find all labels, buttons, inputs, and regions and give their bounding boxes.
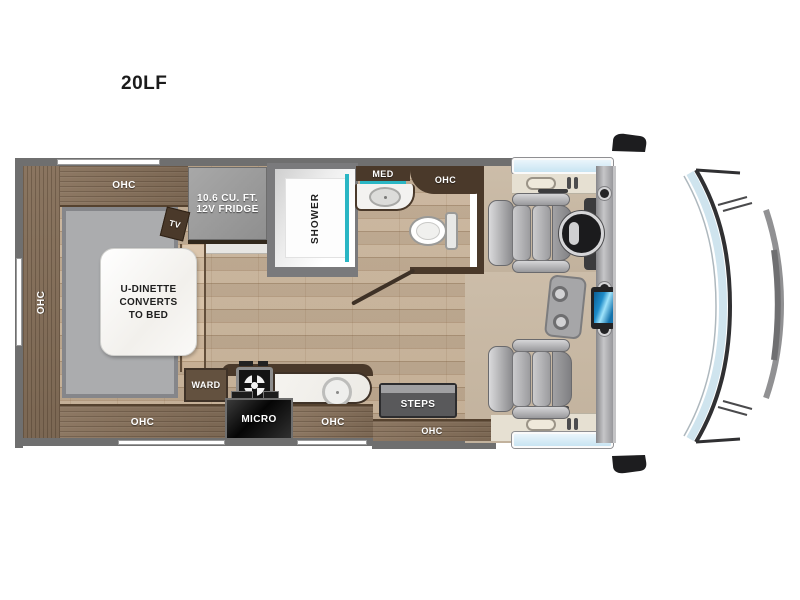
entry-steps-labelbox: STEPS xyxy=(381,389,455,420)
floorplan-title: 20LF xyxy=(121,73,167,95)
med-label: MED xyxy=(372,169,393,179)
med-cabinet: MED xyxy=(356,166,410,181)
passenger-seat-cushion-1 xyxy=(512,351,531,407)
windshield-tip-bottom xyxy=(696,439,740,442)
dinette-label-line2: CONVERTS xyxy=(120,296,178,309)
toilet-tank xyxy=(445,212,458,250)
entry-steps: STEPS xyxy=(379,383,457,418)
steering-wheel-hub xyxy=(569,222,579,245)
driver-seat-back xyxy=(488,200,514,266)
hood-lines-bottom xyxy=(718,401,752,415)
cab-right-edge xyxy=(613,166,616,443)
driver-seat-cushion-2 xyxy=(532,205,551,261)
windshield-frame xyxy=(696,170,730,442)
bath-ohc-cabinet: OHC xyxy=(410,166,481,194)
microwave: MICRO xyxy=(225,398,293,440)
driver-seat-cushion-1 xyxy=(512,205,531,261)
bumper-arc-shade xyxy=(774,250,778,360)
dinette-label-line1: U-DINETTE xyxy=(120,283,176,296)
windshield-tip-top xyxy=(696,170,740,173)
center-console xyxy=(544,274,587,340)
cupholder-2 xyxy=(553,314,569,330)
cabinet-bottom-mid-ohc: OHC xyxy=(293,404,373,438)
mirror-top-icon xyxy=(612,134,646,152)
passenger-seat-cushion-2 xyxy=(532,351,551,407)
windshield-glass xyxy=(690,173,723,439)
ohc-bath-label: OHC xyxy=(435,175,456,185)
shower-label: SHOWER xyxy=(310,193,321,244)
fridge-label-line2: 12V FRIDGE xyxy=(196,204,258,215)
wardrobe: WARD xyxy=(184,368,228,402)
micro-label: MICRO xyxy=(241,414,276,425)
bumper-arc xyxy=(766,210,781,398)
cabinet-entry-ohc: OHC xyxy=(373,419,491,441)
dash-knob-top xyxy=(600,189,609,198)
floorplan-page: 20LF OHC OHC 10.6 CU. FT. 12V FRIDGE STE… xyxy=(0,0,800,600)
passenger-seat xyxy=(478,338,582,420)
windshield-inner-edge xyxy=(684,176,716,436)
cabinet-left-ohc: OHC xyxy=(23,166,60,438)
dinette-label-line3: TO BED xyxy=(129,309,168,322)
passenger-seat-back xyxy=(488,346,514,412)
toilet-seat xyxy=(416,222,440,240)
cabinet-top-ohc: OHC xyxy=(60,166,188,207)
ward-label: WARD xyxy=(191,380,220,390)
window-left xyxy=(16,258,22,346)
cooktop-grate-2 xyxy=(258,361,268,366)
bath-sink-drain xyxy=(384,196,387,199)
driver-door-latch-1 xyxy=(567,177,571,189)
cupholder-1 xyxy=(552,286,568,302)
bath-wall-bottom xyxy=(410,267,484,274)
window-top xyxy=(57,159,160,165)
burner-center xyxy=(251,382,258,389)
mirror-bottom-icon xyxy=(612,455,646,473)
tv-label: TV xyxy=(168,218,182,231)
steps-label: STEPS xyxy=(401,399,436,410)
ohc-bottom-left-label: OHC xyxy=(131,417,154,428)
ohc-left-label: OHC xyxy=(36,290,47,313)
driver-door-latch-2 xyxy=(574,177,578,189)
infotainment-screen xyxy=(594,292,613,323)
fridge: 10.6 CU. FT. 12V FRIDGE xyxy=(188,167,267,240)
passenger-seat-arm-bottom xyxy=(512,406,570,419)
ohc-entry-label: OHC xyxy=(421,426,442,436)
shower-label-box: SHOWER xyxy=(275,169,355,267)
fridge-label-line1: 10.6 CU. FT. xyxy=(197,193,258,204)
window-bottom-mid xyxy=(297,440,367,445)
dinette-table: U-DINETTE CONVERTS TO BED xyxy=(100,248,197,356)
ohc-bottom-mid-label: OHC xyxy=(321,417,344,428)
window-bottom-left xyxy=(118,440,225,445)
hood-lines-top xyxy=(718,197,752,211)
cooktop-grate-1 xyxy=(239,361,253,366)
passenger-seat-front xyxy=(552,351,572,407)
kitchen-sink-drain xyxy=(336,391,339,394)
cabinet-bottom-left-ohc: OHC xyxy=(60,404,225,438)
steering-wheel xyxy=(559,211,604,256)
driver-seat-arm-bottom xyxy=(512,260,570,273)
ohc-top-label: OHC xyxy=(112,180,135,191)
